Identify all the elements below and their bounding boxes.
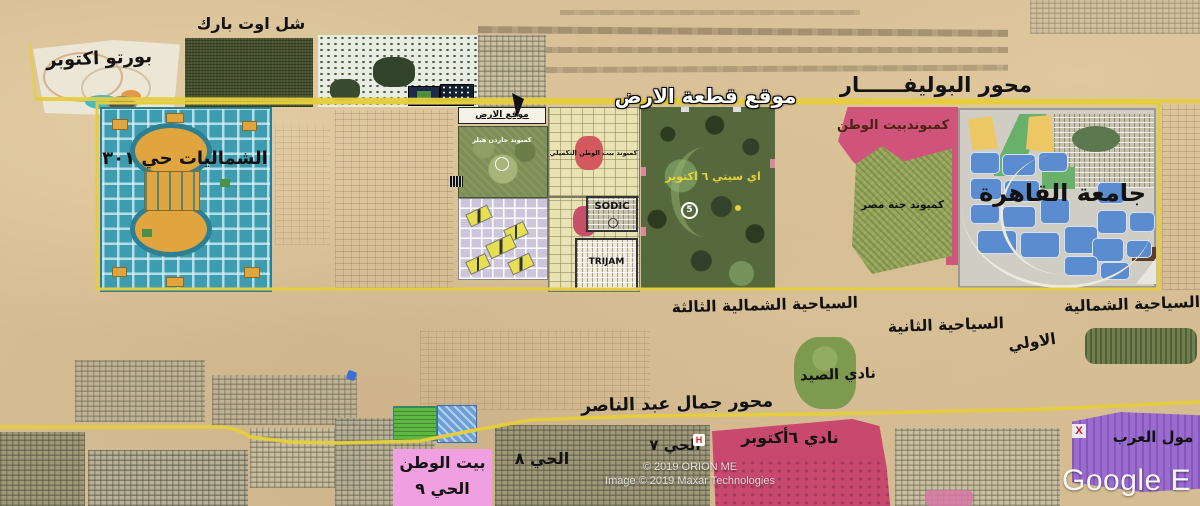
icity-circle-marker: 5 — [681, 202, 698, 219]
boulevard-axis-label: محور البوليفــــــار — [806, 74, 1066, 96]
trijam-plot: TRIJAM — [575, 238, 638, 290]
shamaliat-parcel — [112, 267, 127, 277]
urban-texture — [88, 450, 248, 506]
tourist-first-label-line2: الاولي — [1005, 330, 1059, 353]
shamaliat-compound — [100, 107, 272, 292]
lavender-compound — [458, 198, 548, 280]
shamaliat-green-parcel — [142, 229, 152, 237]
plot-title-label: موقع قطعة الارض — [598, 86, 813, 107]
nasser-axis-label: محور جمال عبد الناصر — [562, 392, 792, 416]
desert-sketch — [275, 125, 330, 245]
logo-inner — [417, 91, 431, 100]
tourist-first-label-line1: السياحية الشمالية — [1082, 294, 1200, 314]
shamaliat-parcel — [112, 119, 128, 130]
trijam-label: TRIJAM — [577, 258, 636, 267]
desert-track — [478, 47, 1008, 53]
green-thumbnail — [393, 406, 437, 441]
copyright-line2: Image © 2019 Maxar Technologies — [545, 475, 835, 487]
pink-patch — [925, 490, 973, 506]
map-canvas[interactable]: موقع الارض SODIC TRIJAM 5 — [0, 0, 1200, 506]
beit-watan-label: كمبوندبيت الوطن — [834, 119, 952, 133]
plot-location-box: موقع الارض — [458, 107, 546, 124]
copyright-line1: © 2019 ORION ME — [545, 461, 835, 473]
icity-green-curve — [671, 147, 741, 237]
masterplan-dark-blob — [373, 57, 415, 87]
october-club-label: نادي ٦أكتوبر — [730, 430, 850, 447]
shamaliat-parcel — [166, 113, 184, 123]
tourist-second-label: السياحية الثانية — [890, 315, 1004, 335]
urban-texture — [1030, 0, 1200, 34]
cairo-university-label: جامعة القاهرة — [984, 181, 1146, 206]
shamaliat-parcel — [244, 267, 260, 278]
landmark-icon — [449, 176, 463, 187]
shamaliat-green-parcel — [220, 179, 230, 187]
urban-texture — [75, 360, 205, 422]
desert-track — [560, 10, 860, 15]
shamaliat-parcel — [166, 277, 184, 287]
icity-gate-marker — [641, 167, 646, 176]
icity-dot — [735, 205, 741, 211]
desert-track — [478, 26, 1008, 37]
lavender-parcel — [507, 253, 535, 276]
beit-watan9-label-line2: الحي ٩ — [395, 481, 490, 498]
urban-texture — [0, 432, 85, 506]
garden-hills-label: كمبوند جاردن هيلز — [460, 137, 544, 144]
urban-texture — [895, 428, 1060, 506]
arab-mall-label: مول العرب — [1106, 430, 1200, 446]
plot-arrow-icon — [508, 93, 528, 119]
janna-misr-label: كمبوند جنة مصر — [854, 200, 951, 211]
lavender-parcel — [485, 234, 517, 259]
sodic-plot: SODIC — [586, 196, 638, 232]
circle-marker — [495, 157, 509, 171]
uni-white-corner — [1136, 258, 1156, 284]
icity-compound: 5 — [641, 107, 775, 288]
logo-thumbnail — [408, 86, 440, 106]
lavender-parcel — [465, 205, 493, 228]
hunting-club-label: نادي الصيد — [792, 366, 884, 384]
blue-thumbnail — [437, 405, 477, 443]
beit-watan-takmili-label: كمبوند بيت الوطن التكميلي — [549, 150, 638, 157]
lavender-parcel — [465, 253, 491, 275]
chillout-park-label: شل اوت بارك — [196, 16, 306, 33]
shamaliat-label: الشماليات حي ٣٠١ — [102, 150, 268, 169]
circle-marker — [608, 218, 618, 228]
google-earth-logo: Google E — [1062, 464, 1200, 498]
mall-x-marker: X — [1072, 424, 1086, 438]
hospital-marker: H — [693, 434, 705, 446]
logo-thumbnail — [440, 84, 474, 106]
shamaliat-center-block — [144, 171, 200, 211]
shamaliat-parcel — [242, 121, 257, 131]
chillout-park-area — [185, 38, 313, 107]
icity-label: اي سيتي ٦ اكتوبر — [653, 171, 773, 183]
desert-sketch — [1162, 105, 1200, 290]
icity-gate-marker — [770, 159, 775, 168]
tourist-third-label: السياحية الشمالية الثالثة — [676, 295, 858, 316]
desert-sketch — [335, 110, 453, 288]
sodic-label: SODIC — [588, 202, 636, 213]
masterplan-dark-blob — [330, 79, 360, 101]
icity-gate-marker — [641, 227, 646, 236]
beit-watan9-label-line1: بيت الوطن — [395, 455, 490, 472]
compound-blob — [1085, 328, 1197, 364]
